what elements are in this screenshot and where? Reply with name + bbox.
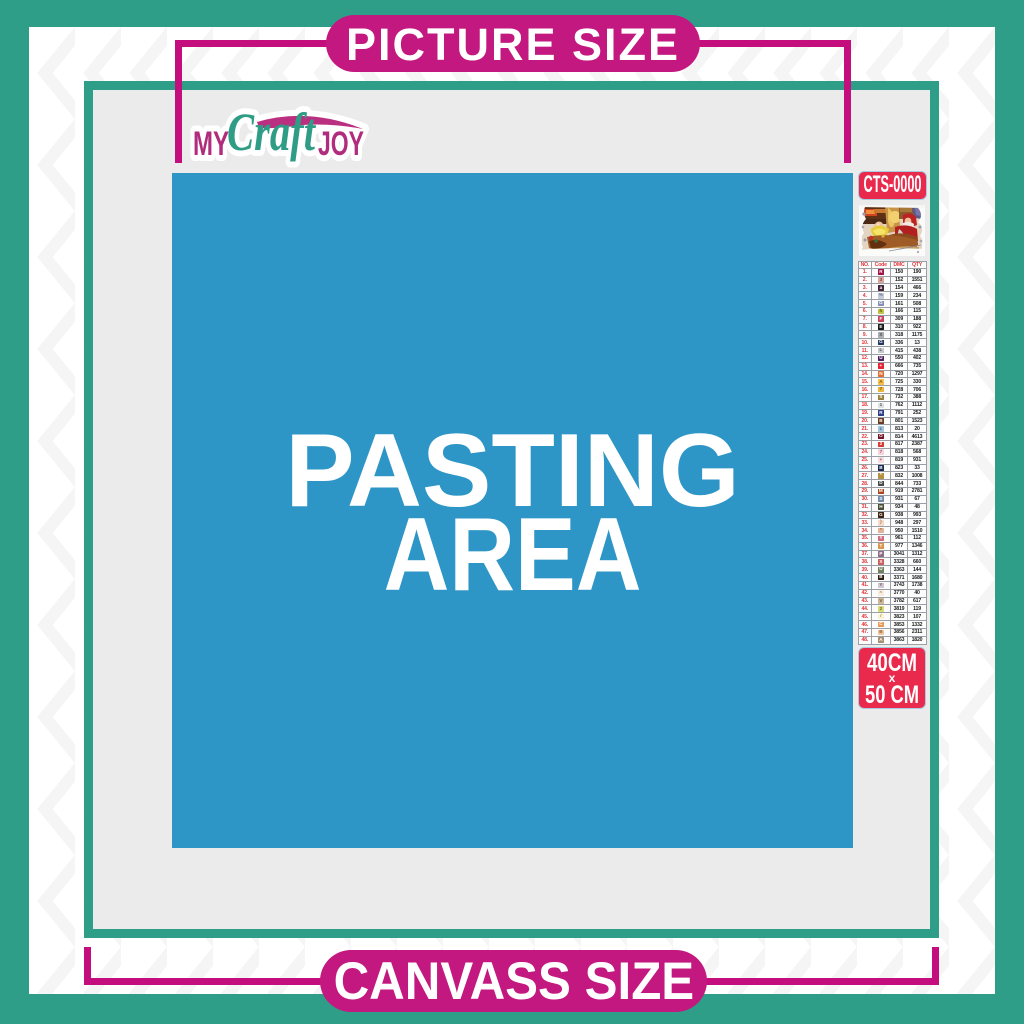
svg-text:Craft: Craft (227, 102, 316, 162)
svg-text:MY: MY (193, 125, 229, 163)
svg-text:CTS-0000: CTS-0000 (864, 173, 922, 198)
svg-text:JOY: JOY (318, 125, 364, 163)
svg-text:50 CM: 50 CM (865, 681, 919, 706)
